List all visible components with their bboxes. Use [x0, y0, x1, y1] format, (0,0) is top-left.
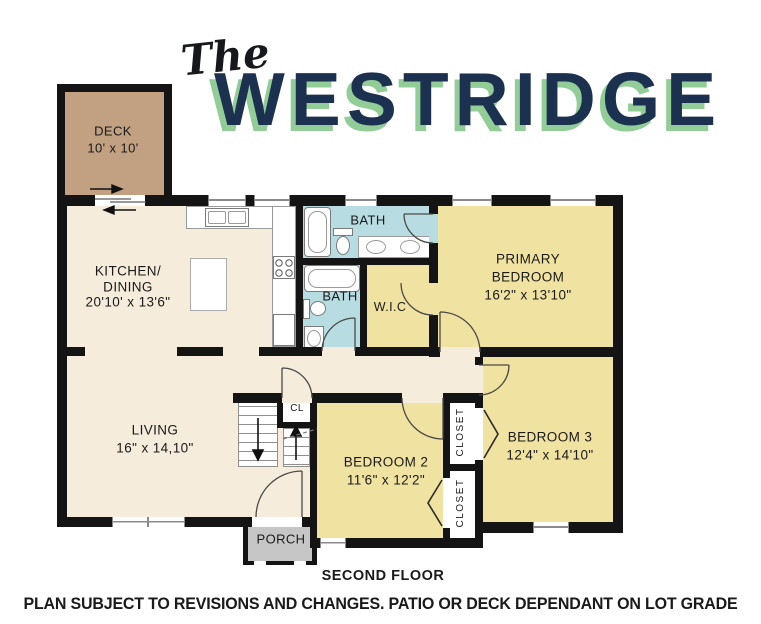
cl-door-opening [282, 393, 312, 403]
closet-wall-right-b [475, 460, 483, 548]
primary-dims: 16'2" x 13'10" [484, 288, 571, 302]
closet-bedroom3-label: CLOSET [456, 407, 466, 456]
bath-lower-door-opening [322, 347, 355, 356]
kitchen-living-wall-a [57, 347, 85, 356]
kitchen-label-line2: DINING [103, 280, 153, 294]
porch-wall-right [312, 517, 317, 565]
bedroom3-door-opening [475, 365, 483, 393]
pedestal-sink-bowl [307, 330, 321, 347]
porch-step-gap-left [254, 561, 266, 565]
bedroom2-dims: 11'6" x 12'2" [347, 473, 425, 487]
bath-lower-label: BATH [322, 290, 357, 303]
porch-step-gap-right [294, 561, 306, 565]
deck-wall-top [57, 84, 172, 92]
window-bedroom3 [533, 522, 569, 533]
primary-door-opening [440, 347, 480, 357]
toilet-upper-tank [333, 228, 353, 236]
hall-top-wall-b [355, 347, 436, 356]
bedroom2-floor [314, 397, 446, 542]
window-living-1 [112, 517, 148, 527]
deck-dims: 10' x 10' [87, 142, 138, 155]
exterior-wall-right [613, 195, 623, 533]
primary-wall-bottom [480, 347, 623, 357]
porch-wall-left [243, 517, 248, 565]
vanity-sink-left [366, 240, 386, 254]
cl-label: CL [290, 404, 304, 414]
closet-bedroom2-label: CLOSET [456, 478, 466, 527]
kitchen-sink-basin-right [228, 211, 246, 224]
floor-name: SECOND FLOOR [322, 568, 445, 584]
stove [273, 256, 295, 279]
deck-label: DECK [94, 125, 132, 138]
deck-slider-opening [95, 195, 145, 206]
window-bedroom2 [320, 538, 346, 548]
closet-bedroom2-bifold-opening [443, 478, 450, 528]
bath-upper-door-opening [429, 214, 438, 243]
hall-top-wall-a [296, 347, 322, 356]
plan-title: WESTRIDGE [214, 62, 722, 137]
window-bath-upper [345, 195, 377, 206]
bathtub-lower-inner [308, 269, 356, 288]
window-living-2 [148, 517, 185, 527]
primary-wall-left-a [429, 206, 438, 214]
hall-bottom-wall-a [233, 393, 282, 403]
closet-bedroom3-bifold-opening [475, 408, 483, 460]
closet-wall-left-b [443, 528, 450, 548]
floor-plan-page: The WESTRIDGE [0, 0, 761, 624]
living-label: LIVING [132, 423, 179, 437]
kitchen-dims: 20'10' x 13'6" [86, 295, 171, 309]
bedroom2-label: BEDROOM 2 [344, 455, 429, 469]
deck-wall-right [164, 84, 172, 202]
exterior-wall-left [57, 195, 67, 527]
staircase-up [283, 428, 310, 467]
window-kitchen-2 [254, 195, 290, 206]
bedroom3-dims: 12'4" x 14'10" [506, 448, 593, 462]
toilet-lower-tank [303, 299, 310, 319]
kitchen-sink-basin-left [208, 211, 226, 224]
bath-upper-label: BATH [350, 214, 385, 227]
entry-door-opening [252, 517, 302, 527]
toilet-upper-bowl [336, 236, 350, 255]
bedroom3-label: BEDROOM 3 [508, 430, 593, 444]
closet-divider-wall [443, 464, 483, 471]
kitchen-living-wall-b [177, 347, 223, 356]
kitchen-label-line1: KITCHEN/ [95, 264, 161, 278]
staircase-down [238, 397, 278, 467]
wic-door-opening [429, 283, 438, 315]
primary-label-line2: BEDROOM [492, 270, 565, 284]
bath-divider-wall [296, 258, 436, 265]
hallway-floor [233, 351, 478, 397]
primary-wall-left-b [429, 243, 438, 283]
porch-label: PORCH [257, 533, 306, 546]
primary-label-line1: PRIMARY [496, 252, 560, 266]
bath-wic-wall [360, 265, 367, 356]
disclaimer: PLAN SUBJECT TO REVISIONS AND CHANGES. P… [11, 595, 749, 614]
window-kitchen-1 [208, 195, 246, 206]
hall-bottom-wall-b [312, 393, 402, 403]
deck-wall-left [57, 84, 65, 202]
kitchen-island [190, 258, 227, 311]
bathtub-upper-inner [308, 211, 327, 253]
bedroom2-door-opening [402, 393, 443, 403]
closet-wall-right-a [475, 393, 483, 408]
wic-label: W.I.C [374, 301, 407, 314]
bath-column-wall-left [296, 206, 303, 356]
window-primary-2 [550, 195, 596, 206]
primary-wall-bottom-stub [429, 347, 440, 357]
vanity-sink-right [400, 240, 420, 254]
fridge [273, 314, 295, 346]
window-primary-1 [452, 195, 492, 206]
living-dims: 16" x 14,10" [116, 441, 193, 455]
